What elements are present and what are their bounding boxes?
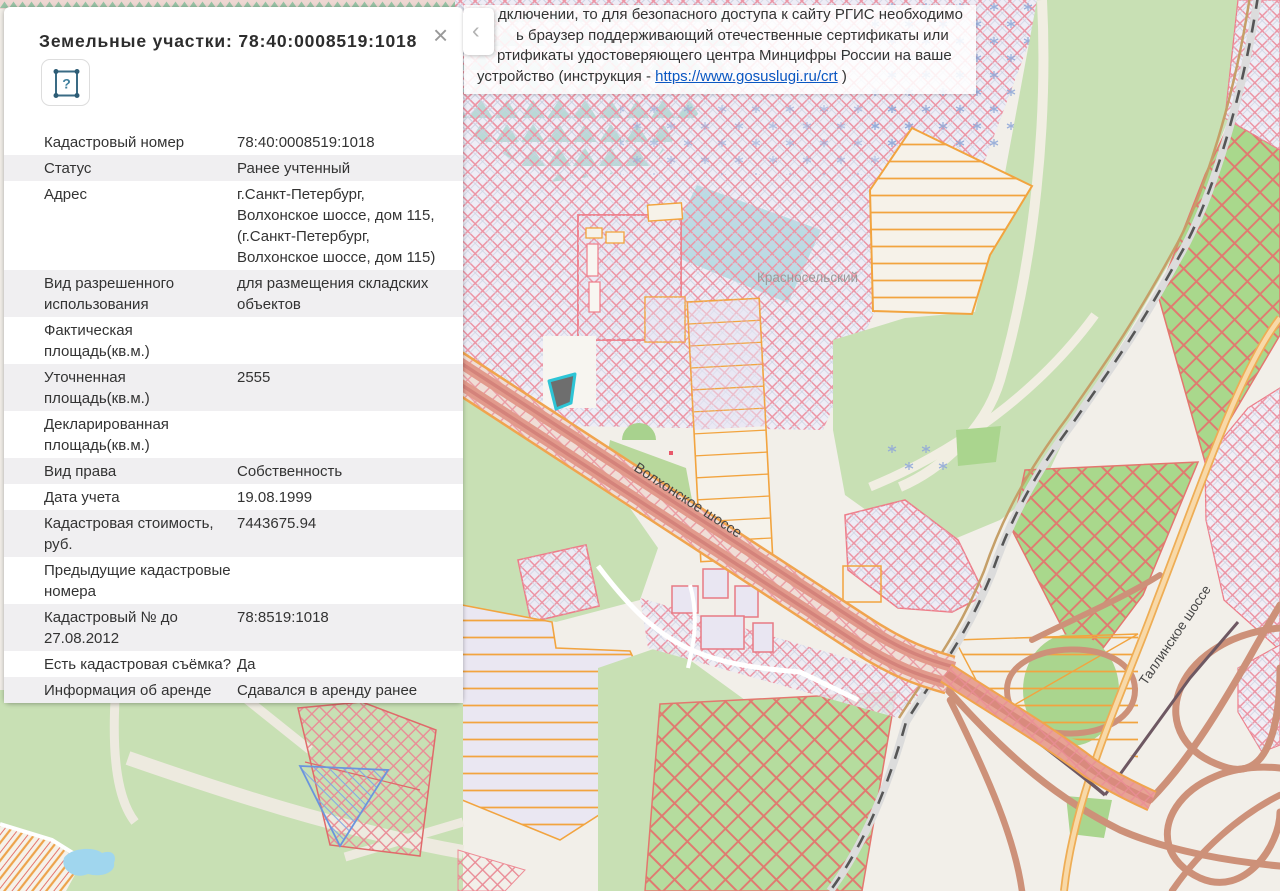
svg-text:?: ? bbox=[62, 76, 71, 92]
svg-text:Красносельский: Красносельский bbox=[757, 270, 858, 285]
